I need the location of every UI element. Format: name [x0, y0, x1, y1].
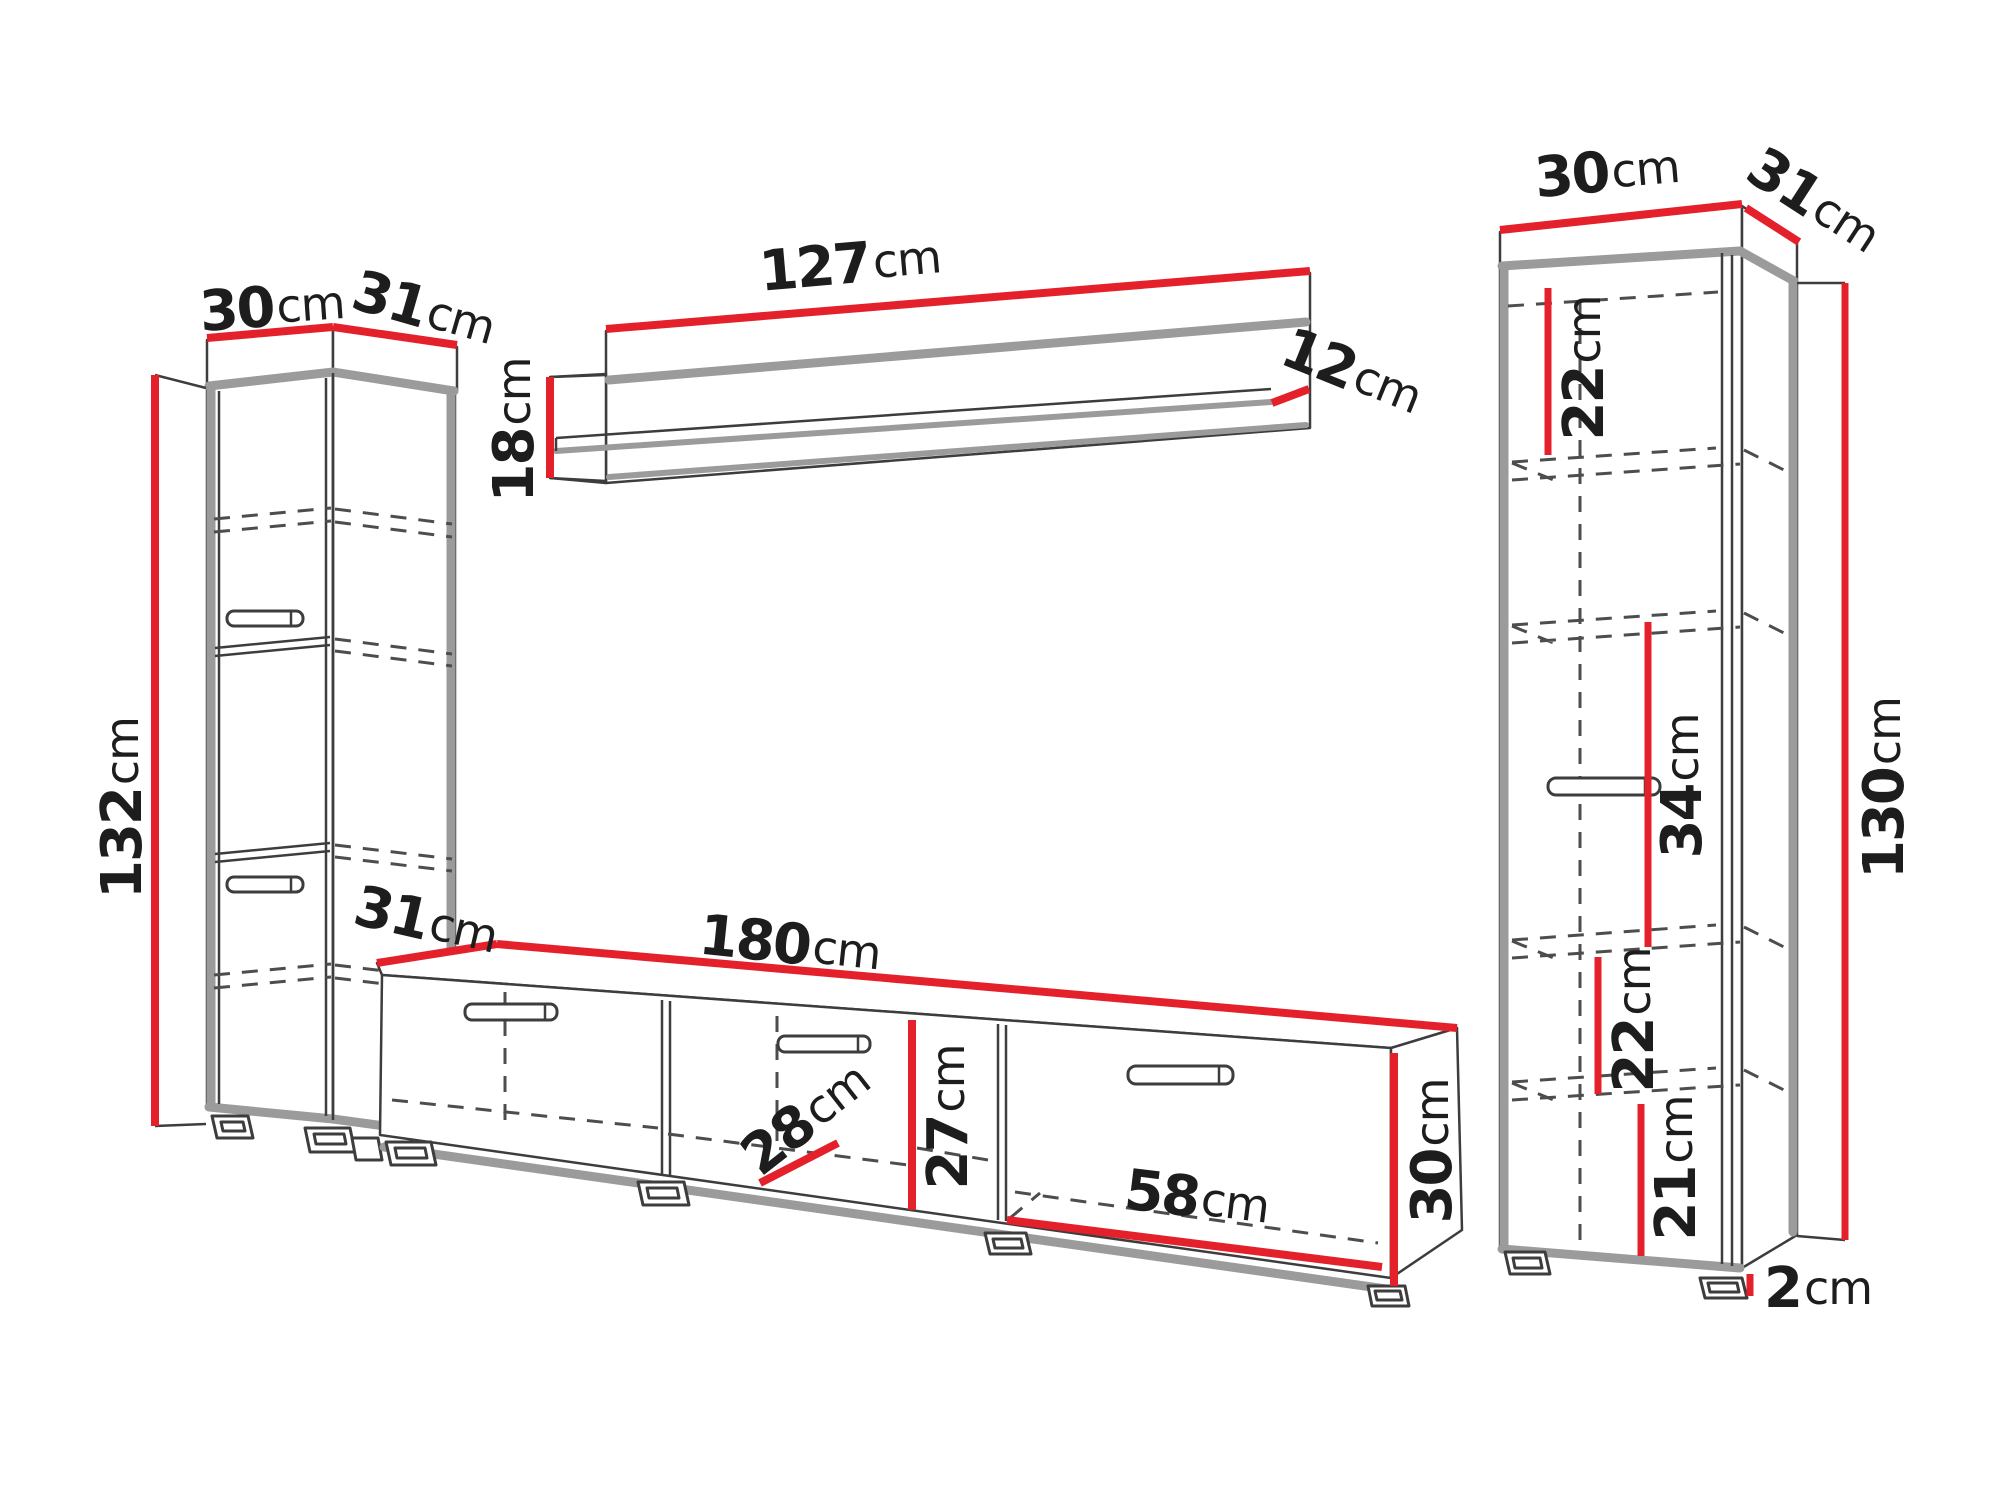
dim-wall-shelf-width: 127cm — [757, 224, 944, 305]
dim-wall-shelf-height: 18cm — [482, 357, 547, 502]
dim-tv-stand-inner-height: 27cm — [916, 1044, 981, 1189]
wall-shelf-left-cap — [550, 374, 606, 483]
dim-right-column-plinth: 2cm — [1764, 1256, 1872, 1321]
dim-left-column-height: 132cm — [90, 717, 155, 899]
diagram-canvas: 30cm 31cm 132cm 127cm 12cm 18cm 31cm 180… — [0, 0, 2000, 1500]
wall-shelf-drawing — [550, 271, 1310, 483]
tv-stand-handle-left — [465, 1004, 557, 1020]
left-column-handle-upper — [227, 611, 303, 626]
dim-right-column-shelf-bottom: 21cm — [1644, 1095, 1709, 1240]
furniture-dimension-diagram: 30cm 31cm 132cm 127cm 12cm 18cm 31cm 180… — [0, 0, 2000, 1500]
right-column-handle — [1548, 778, 1660, 795]
left-column-front-face — [207, 373, 333, 1120]
tv-stand-handle-middle — [778, 1036, 870, 1052]
left-column-extension-top — [155, 375, 206, 388]
dim-tv-stand-height: 30cm — [1400, 1078, 1465, 1223]
left-column-extension-bottom — [155, 1124, 206, 1126]
dim-right-column-width: 30cm — [1532, 133, 1682, 210]
dim-right-column-shelf-lower: 22cm — [1602, 947, 1667, 1092]
right-column-extension-bottom — [1797, 1236, 1845, 1240]
left-column-handle-lower — [227, 877, 303, 892]
tv-stand-handle-right — [1128, 1066, 1233, 1084]
dim-right-column-height: 130cm — [1852, 697, 1917, 879]
dim-right-column-shelf-top: 22cm — [1552, 295, 1617, 440]
dim-right-column-shelf-middle: 34cm — [1650, 713, 1715, 858]
